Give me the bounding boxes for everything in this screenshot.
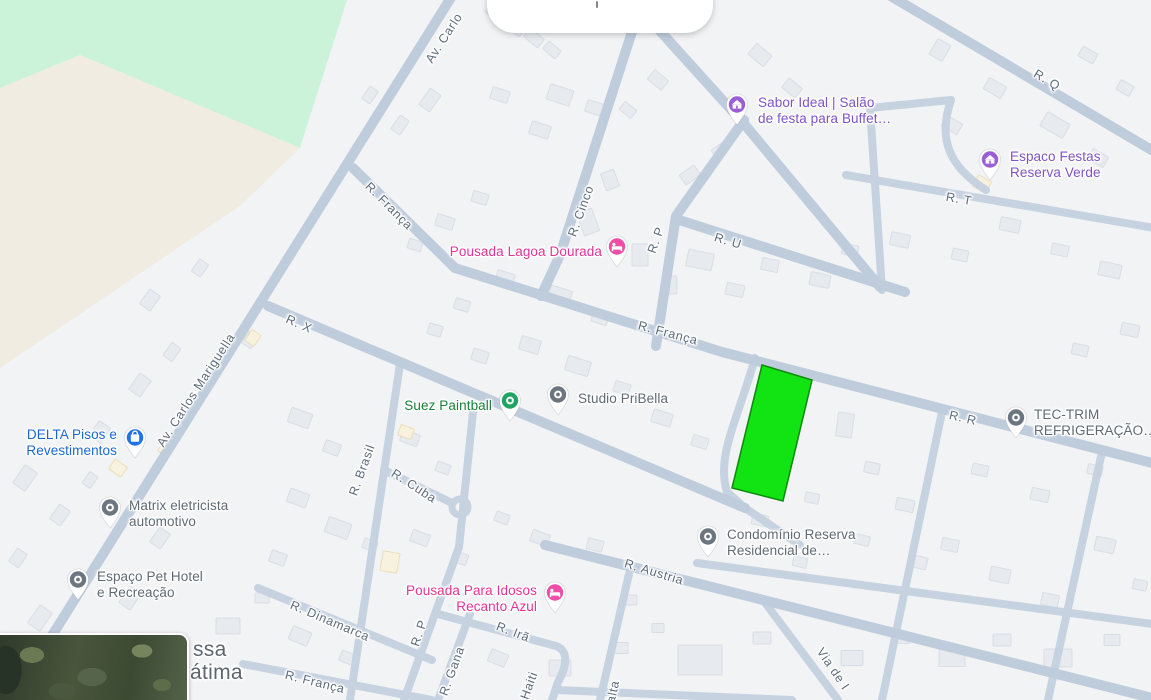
poi-pin-tec-trim[interactable] [1003, 403, 1029, 439]
text-cursor [596, 1, 598, 8]
generic-poi-icon [695, 522, 721, 558]
map-canvas[interactable]: Av. Carlo R. França R. Cinco R. P R. U R… [0, 0, 1151, 700]
poi-label-recanto-azul[interactable]: Pousada Para Idosos Recanto Azul [406, 583, 537, 614]
locality-label-line2: átima [190, 661, 243, 685]
poi-label-sabor-ideal[interactable]: Sabor Ideal | Salão de festa para Buffet… [758, 95, 891, 126]
generic-poi-icon [1003, 403, 1029, 439]
satellite-layer-thumbnail[interactable] [0, 633, 189, 700]
poi-label-espaco-festas[interactable]: Espaco Festas Reserva Verde [1010, 149, 1101, 180]
poi-pin-delta-pisos[interactable] [122, 423, 148, 459]
generic-poi-icon [497, 386, 523, 422]
poi-pin-recanto-azul[interactable] [542, 578, 568, 614]
poi-pin-condominio[interactable] [695, 522, 721, 558]
locality-label-line1: ssa [193, 638, 227, 662]
shopping-icon [122, 423, 148, 459]
poi-pin-pousada-lagoa-dourada[interactable] [604, 232, 630, 268]
poi-pin-studio-pribella[interactable] [545, 380, 571, 416]
generic-poi-icon [545, 380, 571, 416]
lodging-icon [604, 232, 630, 268]
generic-poi-icon [97, 493, 123, 529]
poi-pin-espaco-festas[interactable] [977, 145, 1003, 181]
poi-label-tec-trim[interactable]: TEC-TRIM REFRIGERAÇÃO… [1034, 407, 1151, 438]
poi-label-condominio[interactable]: Condomínio Reserva Residencial de… [727, 527, 856, 558]
lodging-icon [542, 578, 568, 614]
event-venue-icon [977, 145, 1003, 181]
poi-pin-matrix[interactable] [97, 493, 123, 529]
poi-label-espaco-pet[interactable]: Espaço Pet Hotel e Recreação [97, 569, 203, 600]
poi-pin-sabor-ideal[interactable] [724, 90, 750, 126]
event-venue-icon [724, 90, 750, 126]
search-card[interactable] [487, 0, 713, 33]
poi-label-matrix[interactable]: Matrix eletricista automotivo [129, 498, 228, 529]
poi-pin-espaco-pet[interactable] [65, 565, 91, 601]
generic-poi-icon [65, 565, 91, 601]
poi-pin-suez-paintball[interactable] [497, 386, 523, 422]
poi-label-pousada-lagoa-dourada[interactable]: Pousada Lagoa Dourada [450, 244, 602, 260]
poi-label-suez-paintball[interactable]: Suez Paintball [404, 398, 492, 414]
poi-label-studio-pribella[interactable]: Studio PriBella [578, 391, 668, 407]
poi-label-delta-pisos[interactable]: DELTA Pisos e Revestimentos [26, 427, 117, 458]
